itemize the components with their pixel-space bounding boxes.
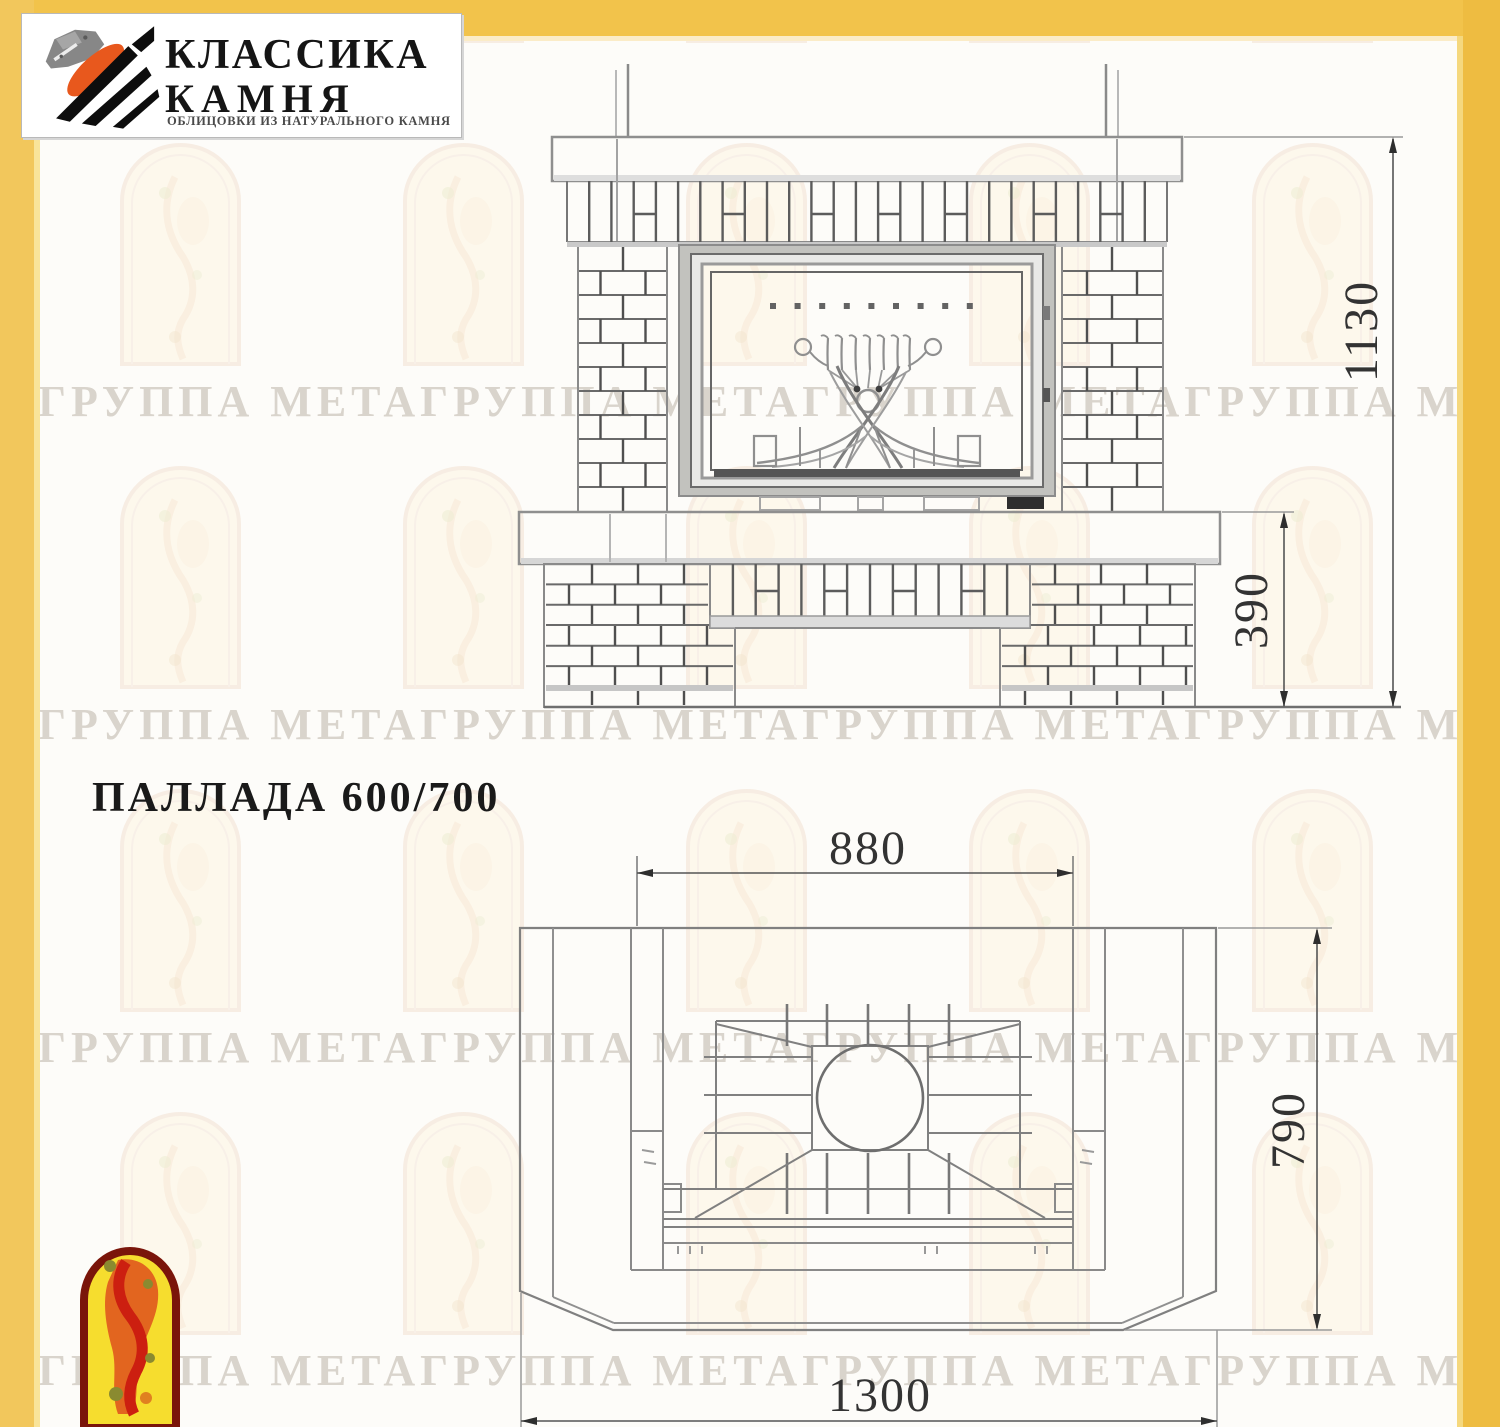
svg-text:1130: 1130 — [1335, 280, 1388, 382]
svg-text:ГРУППА МЕТАГРУППА МЕТАГРУППА М: ГРУППА МЕТАГРУППА МЕТАГРУППА МЕТАГРУППА … — [38, 377, 1500, 426]
svg-text:1300: 1300 — [828, 1369, 932, 1422]
svg-text:880: 880 — [829, 822, 907, 875]
svg-text:790: 790 — [1262, 1091, 1315, 1169]
svg-text:390: 390 — [1225, 571, 1278, 649]
svg-text:ГРУППА МЕТАГРУППА МЕТАГРУППА М: ГРУППА МЕТАГРУППА МЕТАГРУППА МЕТАГРУППА … — [38, 1023, 1500, 1072]
svg-text:ГРУППА МЕТАГРУППА МЕТАГРУППА М: ГРУППА МЕТАГРУППА МЕТАГРУППА МЕТАГРУППА … — [38, 1346, 1500, 1395]
